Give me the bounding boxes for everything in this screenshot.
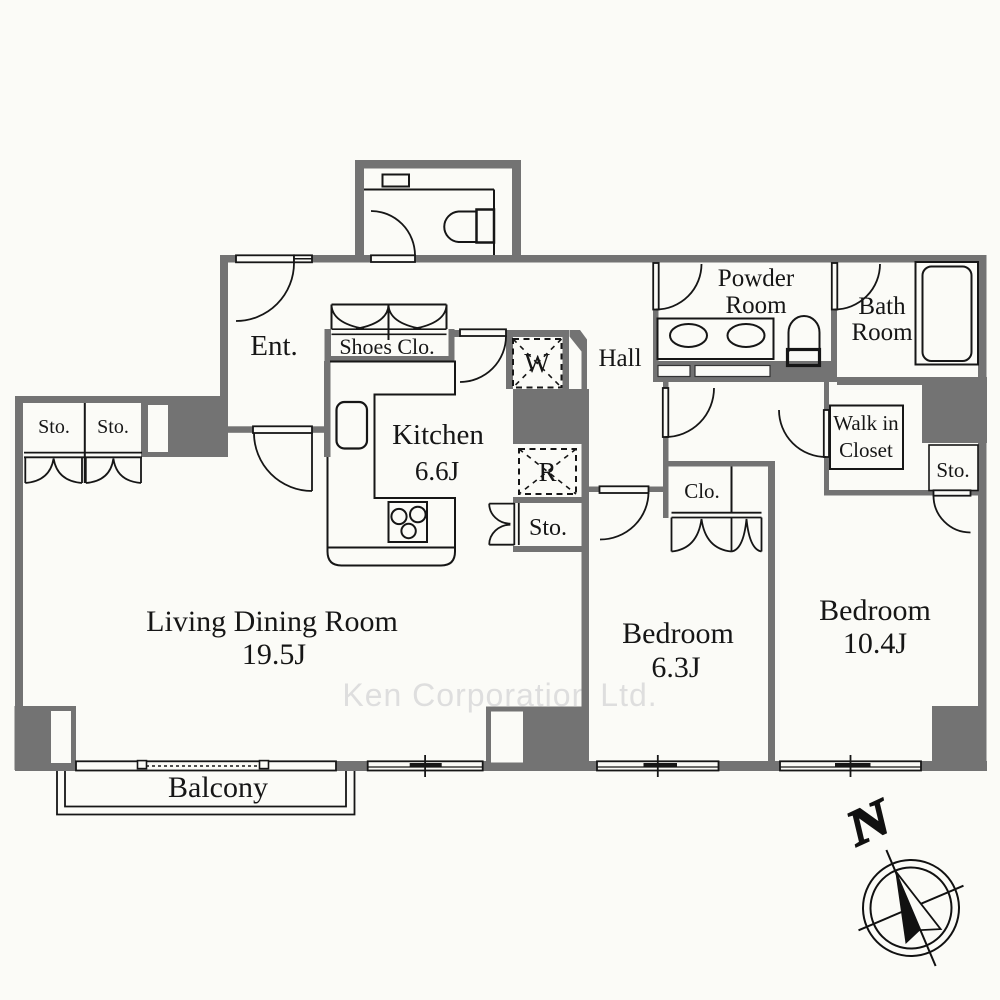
svg-text:Kitchen: Kitchen — [392, 419, 484, 451]
svg-text:Shoes Clo.: Shoes Clo. — [339, 334, 434, 359]
svg-text:Closet: Closet — [839, 438, 893, 462]
svg-text:R: R — [538, 457, 556, 487]
svg-text:Sto.: Sto. — [97, 416, 129, 438]
svg-text:Bedroom: Bedroom — [622, 617, 734, 650]
svg-text:Room: Room — [725, 292, 787, 319]
svg-text:Balcony: Balcony — [168, 771, 268, 804]
svg-text:W: W — [524, 348, 550, 378]
svg-text:Sto.: Sto. — [529, 515, 567, 541]
svg-text:Powder: Powder — [718, 265, 795, 292]
svg-text:6.6J: 6.6J — [415, 456, 459, 486]
svg-text:Ent.: Ent. — [250, 330, 298, 362]
svg-text:Bedroom: Bedroom — [819, 594, 931, 627]
svg-text:Clo.: Clo. — [684, 479, 720, 503]
svg-text:Hall: Hall — [598, 345, 641, 372]
svg-text:Sto.: Sto. — [38, 416, 70, 438]
svg-text:10.4J: 10.4J — [843, 627, 908, 660]
svg-text:Sto.: Sto. — [936, 458, 969, 482]
svg-text:Walk in: Walk in — [833, 411, 899, 435]
svg-text:Bath: Bath — [858, 293, 906, 320]
svg-text:6.3J: 6.3J — [651, 651, 701, 684]
svg-text:Living Dining Room: Living Dining Room — [146, 605, 398, 638]
svg-text:19.5J: 19.5J — [242, 638, 307, 671]
svg-text:Room: Room — [851, 319, 913, 346]
